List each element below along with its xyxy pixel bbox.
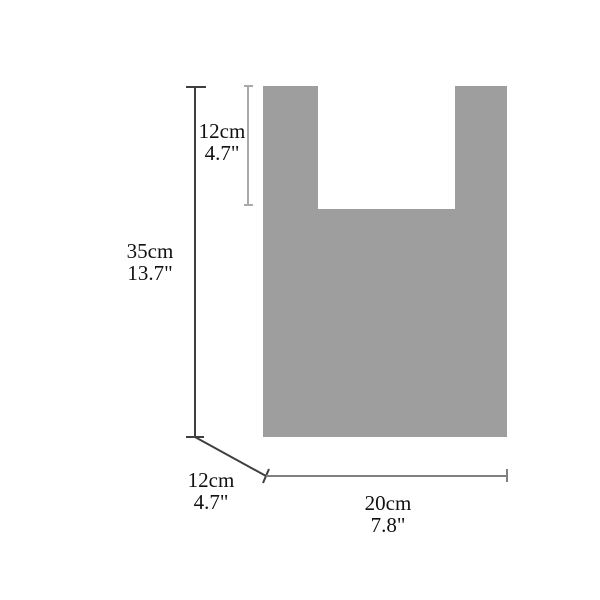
total-height-cm: 35cm xyxy=(127,240,174,262)
total-height-label: 35cm 13.7" xyxy=(127,240,174,284)
depth-cm: 12cm xyxy=(188,469,235,491)
width-label: 20cm 7.8" xyxy=(365,492,412,536)
handle-height-label: 12cm 4.7" xyxy=(199,120,246,164)
bag-dimension-diagram: 12cm 4.7" 35cm 13.7" 12cm 4.7" 20cm 7.8" xyxy=(0,0,600,600)
depth-inch: 4.7" xyxy=(188,491,235,513)
handle-dimension-line xyxy=(244,86,253,205)
width-inch: 7.8" xyxy=(365,514,412,536)
width-cm: 20cm xyxy=(365,492,412,514)
diagram-graphics xyxy=(0,0,600,600)
handle-height-inch: 4.7" xyxy=(199,142,246,164)
bag-handle-notch xyxy=(318,86,455,209)
width-dimension-line xyxy=(266,469,507,482)
total-height-inch: 13.7" xyxy=(127,262,174,284)
depth-label: 12cm 4.7" xyxy=(188,469,235,513)
handle-height-cm: 12cm xyxy=(199,120,246,142)
